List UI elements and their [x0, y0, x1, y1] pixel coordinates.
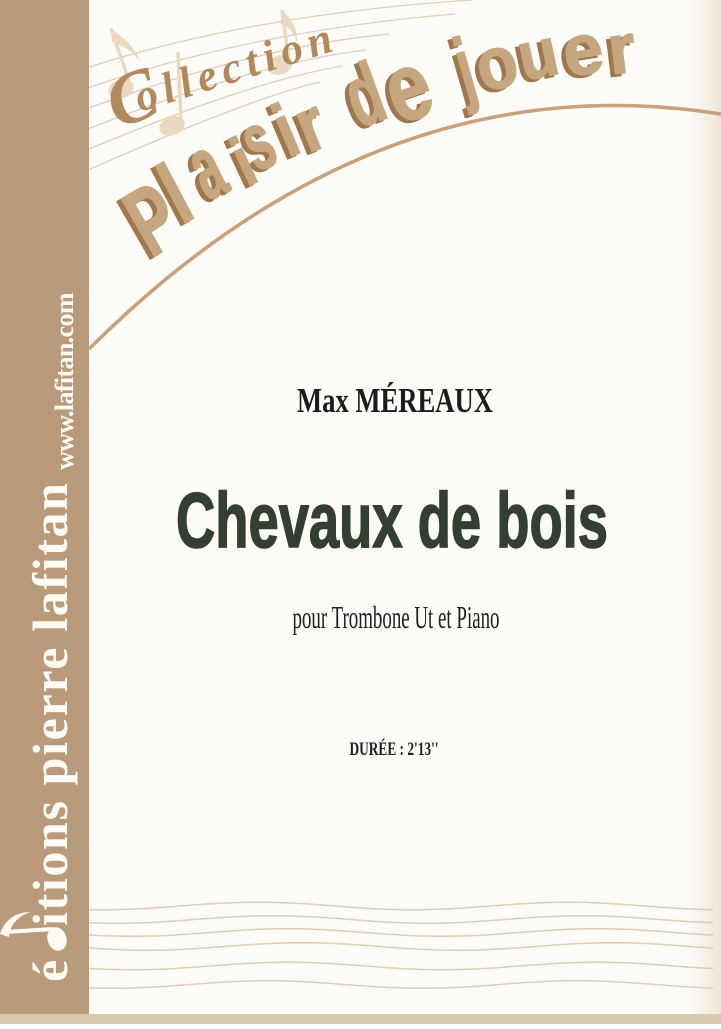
svg-text:itions pierre lafitan: itions pierre lafitan: [22, 483, 78, 926]
svg-text:Chevaux de bois: Chevaux de bois: [176, 476, 608, 564]
svg-text:é: é: [22, 960, 78, 982]
svg-text:www.lafitan.com: www.lafitan.com: [50, 292, 79, 470]
svg-text:DURÉE : 2'13'': DURÉE : 2'13'': [350, 738, 439, 760]
svg-text:Max MÉREAUX: Max MÉREAUX: [297, 381, 493, 420]
svg-text:pour Trombone Ut et Piano: pour Trombone Ut et Piano: [293, 599, 500, 635]
